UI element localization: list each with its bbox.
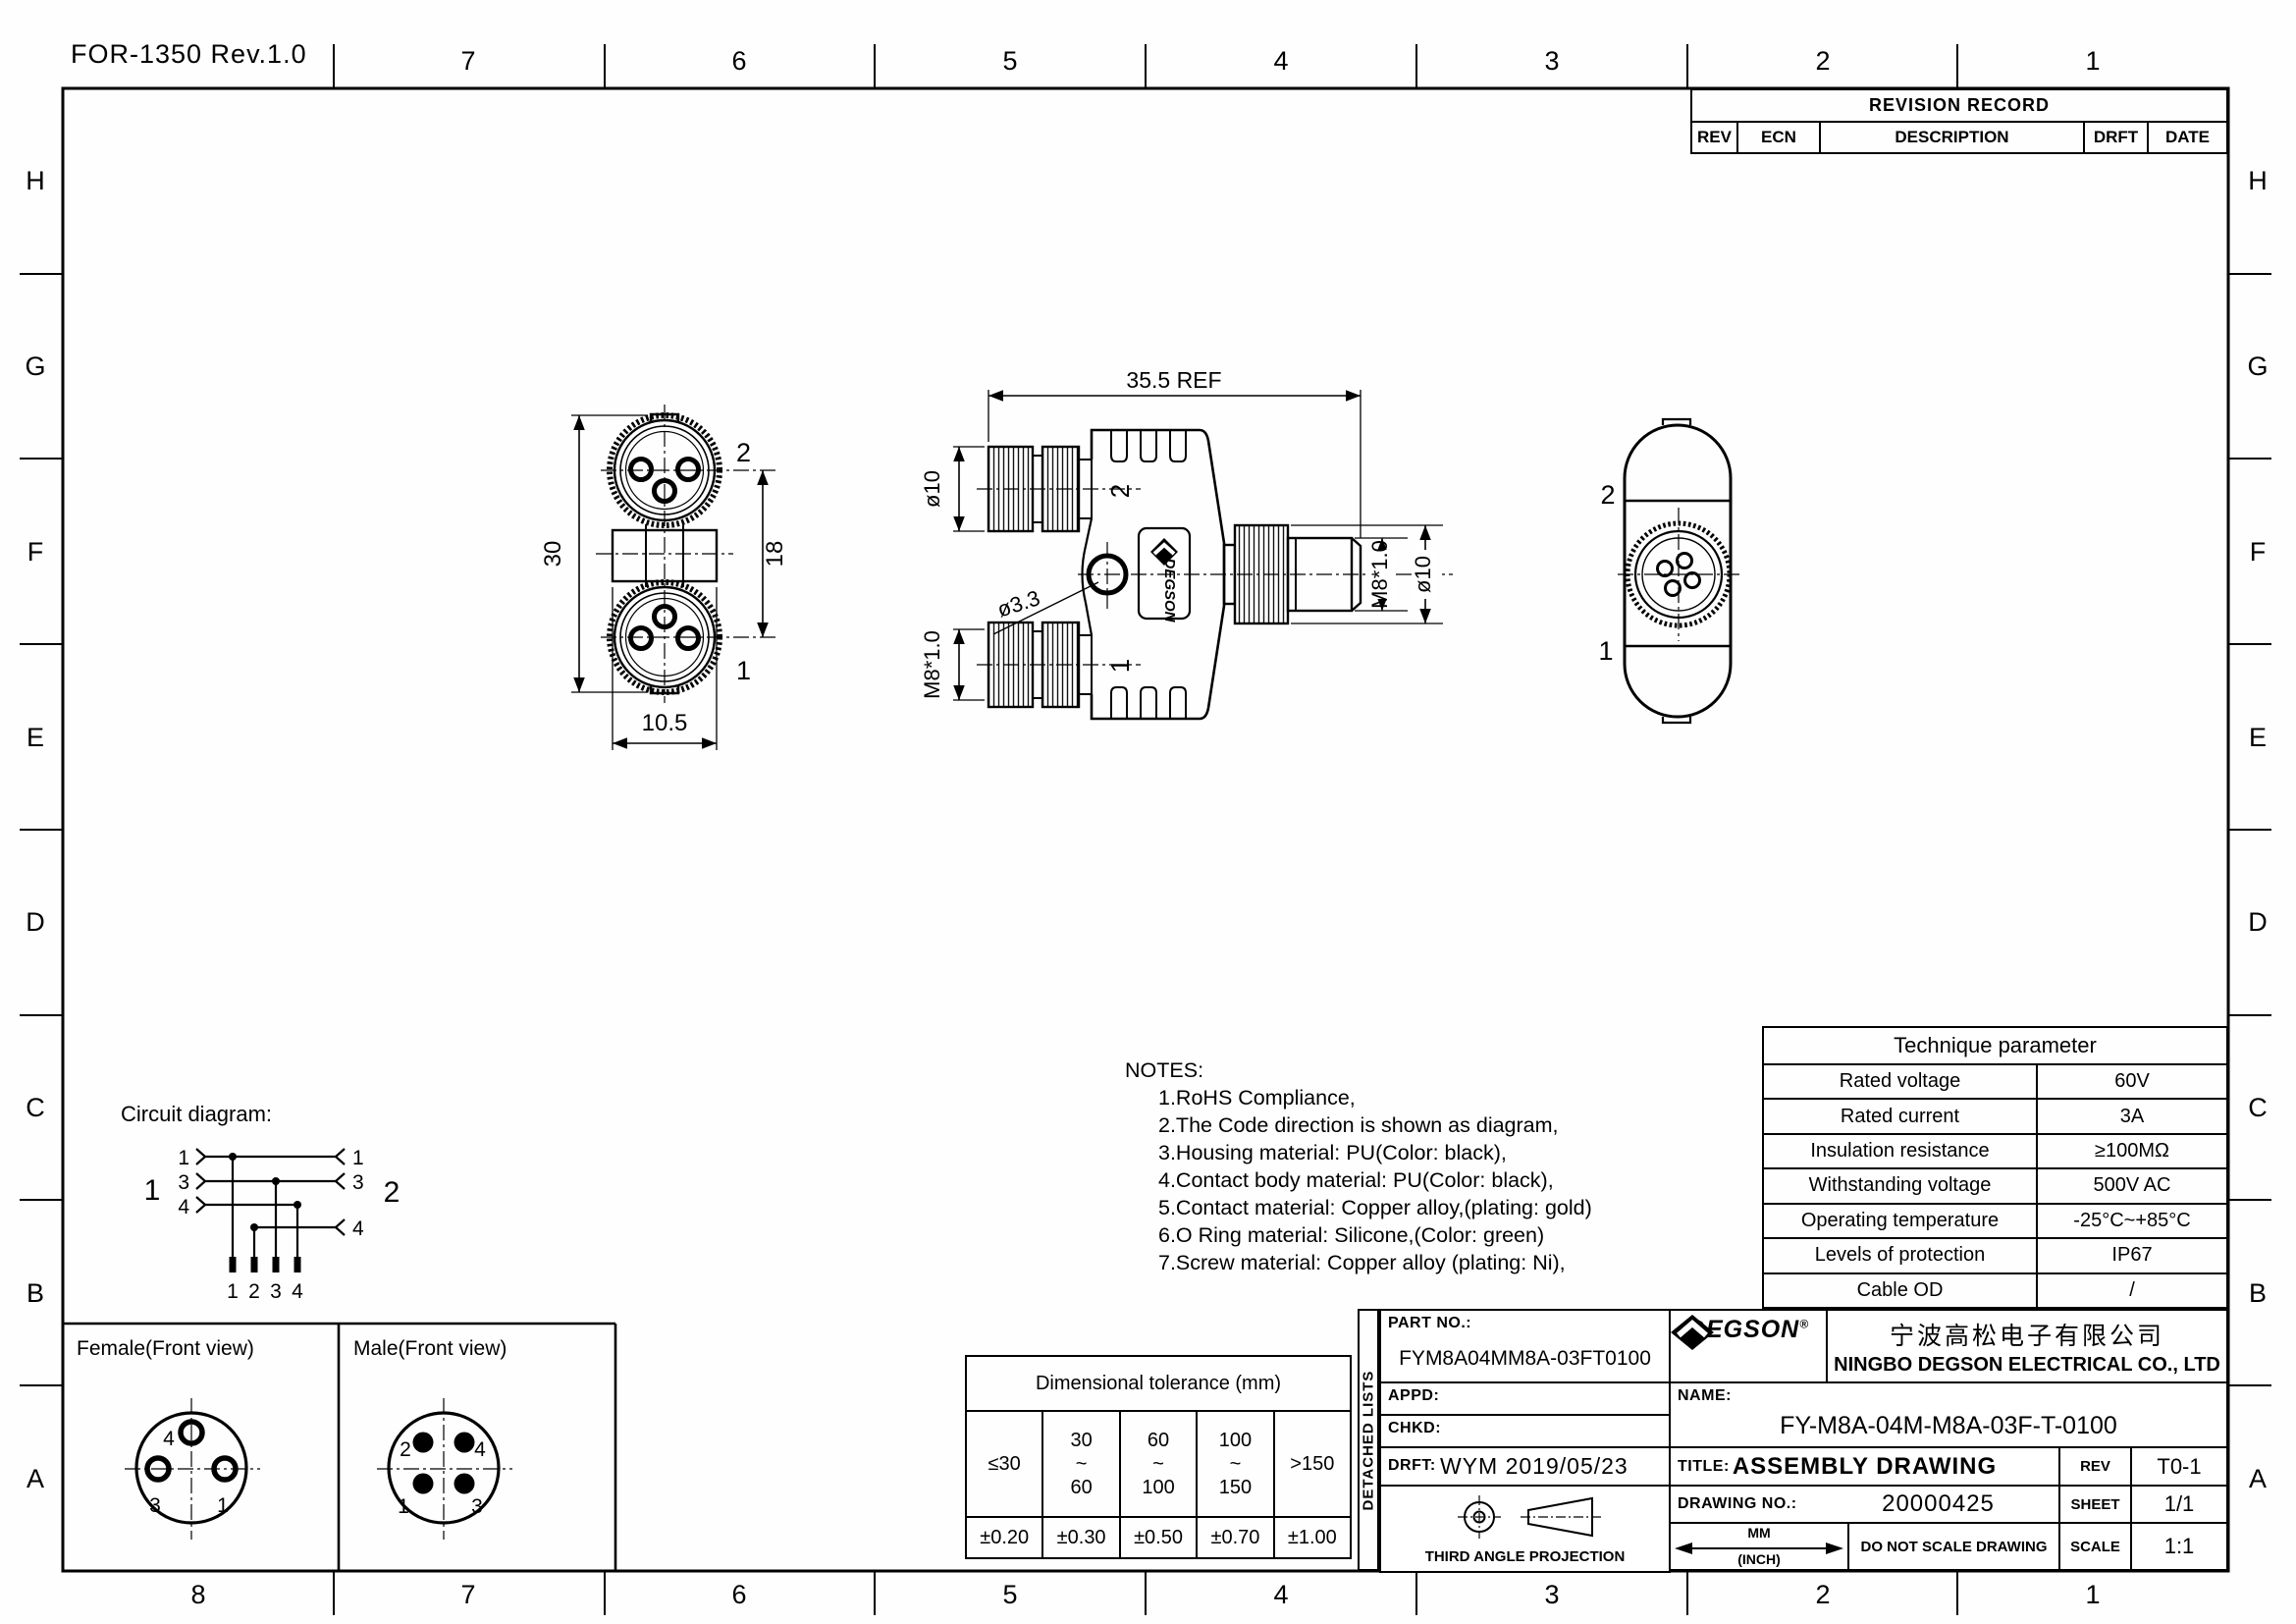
technique-label: Rated current — [1764, 1100, 2038, 1132]
chkd-label: CHKD: — [1388, 1420, 1441, 1437]
tolerance-range: >150 — [1275, 1412, 1350, 1518]
front-dim-pitch: 18 — [762, 541, 788, 568]
technique-title: Technique parameter — [1764, 1028, 2226, 1065]
title-value: ASSEMBLY DRAWING — [1671, 1448, 2058, 1485]
grid-col-label: 8 — [177, 1577, 220, 1612]
grid-col-label: 2 — [1801, 43, 1844, 79]
male-pin-2: 2 — [400, 1438, 411, 1461]
tolerance-range: ≤30 — [967, 1412, 1043, 1518]
tolerance-value: ±1.00 — [1275, 1518, 1350, 1557]
chkd-cell: CHKD: — [1379, 1414, 1671, 1448]
company-cell: 宁波高松电子有限公司 NINGBO DEGSON ELECTRICAL CO.,… — [1826, 1309, 2228, 1383]
units-inch: (INCH) — [1671, 1551, 1847, 1567]
title-cell: TITLE: ASSEMBLY DRAWING — [1669, 1446, 2060, 1487]
grid-row-label: G — [14, 349, 57, 384]
logo-cell: DEGSON® — [1669, 1309, 1828, 1383]
grid-row-label: D — [14, 904, 57, 940]
drawing-no-cell: DRAWING NO.: 20000425 — [1669, 1485, 2060, 1524]
side-port-1-label: 1 — [1105, 659, 1135, 673]
male-view-title: Male(Front view) — [353, 1337, 507, 1360]
sheet-label-cell: SHEET — [2058, 1485, 2132, 1524]
revision-record-table: REVISION RECORD REV ECN DESCRIPTION DRFT… — [1690, 88, 2228, 154]
tolerance-title: Dimensional tolerance (mm) — [967, 1357, 1350, 1412]
part-no-cell: PART NO.: FYM8A04MM8A-03FT0100 — [1379, 1309, 1671, 1383]
projection-cell: THIRD ANGLE PROJECTION — [1379, 1485, 1671, 1573]
grid-row-label: F — [2236, 534, 2279, 569]
rev-label-cell: REV — [2058, 1446, 2132, 1487]
grid-col-label: 6 — [718, 43, 761, 79]
grid-row-label: C — [2236, 1090, 2279, 1125]
technique-value: -25°C~+85°C — [2038, 1205, 2226, 1237]
female-view-title: Female(Front view) — [77, 1337, 254, 1360]
circuit-diagram — [196, 1149, 345, 1272]
technique-value: / — [2038, 1274, 2226, 1307]
notes-block: NOTES: 1.RoHS Compliance, 2.The Code dir… — [1125, 1056, 1714, 1276]
male-pin-4: 4 — [474, 1438, 486, 1461]
side-port-2-label: 2 — [1105, 484, 1135, 498]
third-angle-projection-symbol — [1381, 1489, 1669, 1545]
grid-row-label: D — [2236, 904, 2279, 940]
front-dim-width: 10.5 — [642, 710, 688, 736]
scale-value: 1:1 — [2132, 1524, 2226, 1569]
technique-label: Rated voltage — [1764, 1065, 2038, 1098]
scale-label-cell: SCALE — [2058, 1522, 2132, 1571]
tolerance-value: ±0.50 — [1121, 1518, 1198, 1557]
drft-value: WYM 2019/05/23 — [1440, 1448, 1669, 1485]
company-name-en: NINGBO DEGSON ELECTRICAL CO., LTD — [1828, 1354, 2226, 1377]
grid-row-label: G — [2236, 349, 2279, 384]
technique-value: 3A — [2038, 1100, 2226, 1132]
revision-col-ecn: ECN — [1738, 123, 1821, 152]
front-port-1-label: 1 — [736, 656, 751, 685]
back-port-2-label: 2 — [1600, 480, 1615, 510]
grid-col-label: 7 — [447, 1577, 490, 1612]
rev-label: REV — [2060, 1448, 2130, 1485]
part-no-value: FYM8A04MM8A-03FT0100 — [1381, 1336, 1669, 1381]
drawing-no-value: 20000425 — [1818, 1487, 2058, 1522]
detached-lists-strip: DETACHED LISTS — [1358, 1309, 1379, 1571]
rev-value: T0-1 — [2132, 1448, 2226, 1485]
revision-col-description: DESCRIPTION — [1821, 123, 2085, 152]
grid-col-label: 7 — [447, 43, 490, 79]
drft-cell: DRFT: WYM 2019/05/23 — [1379, 1446, 1671, 1487]
side-logo-text: DEGSON — [1161, 558, 1178, 623]
circuit-bottom-pin: 4 — [292, 1280, 303, 1303]
front-port-2-label: 2 — [736, 438, 751, 467]
technique-value: ≥100MΩ — [2038, 1135, 2226, 1167]
circuit-right-pin: 3 — [352, 1171, 364, 1194]
technique-label: Operating temperature — [1764, 1205, 2038, 1237]
part-no-label: PART NO.: — [1388, 1315, 1471, 1332]
side-dim-thread-right: M8*1.0 — [1367, 540, 1392, 609]
circuit-left-connector-label: 1 — [144, 1174, 161, 1207]
registered-mark: ® — [1799, 1318, 1809, 1331]
name-label: NAME: — [1678, 1387, 1732, 1405]
technique-value: 500V AC — [2038, 1169, 2226, 1202]
grid-row-label: E — [2236, 720, 2279, 755]
tolerance-range: 100 ~ 150 — [1198, 1412, 1274, 1518]
female-pin-3: 3 — [149, 1494, 161, 1517]
grid-row-label: A — [14, 1461, 57, 1496]
grid-col-label: 2 — [1801, 1577, 1844, 1612]
tolerance-range: 60 ~ 100 — [1121, 1412, 1198, 1518]
back-port-1-label: 1 — [1598, 636, 1613, 666]
note-item: 6.O Ring material: Silicone,(Color: gree… — [1158, 1221, 1714, 1249]
grid-col-label: 1 — [2071, 43, 2114, 79]
front-dim-height: 30 — [540, 541, 566, 568]
grid-row-label: B — [2236, 1275, 2279, 1311]
note-item: 3.Housing material: PU(Color: black), — [1158, 1139, 1714, 1166]
do-not-scale-label: DO NOT SCALE DRAWING — [1849, 1524, 2058, 1569]
rev-value-cell: T0-1 — [2130, 1446, 2228, 1487]
male-pin-3: 3 — [471, 1495, 483, 1518]
form-reference: FOR-1350 Rev.1.0 — [71, 39, 307, 70]
sheet-value: 1/1 — [2132, 1487, 2226, 1522]
circuit-right-connector-label: 2 — [384, 1176, 400, 1209]
sheet-value-cell: 1/1 — [2130, 1485, 2228, 1524]
do-not-scale-cell: DO NOT SCALE DRAWING — [1847, 1522, 2060, 1571]
note-item: 1.RoHS Compliance, — [1158, 1084, 1714, 1111]
grid-col-label: 6 — [718, 1577, 761, 1612]
scale-label: SCALE — [2060, 1524, 2130, 1569]
units-cell: MM (INCH) — [1669, 1522, 1849, 1571]
circuit-bottom-pin: 1 — [227, 1280, 239, 1303]
revision-col-date: DATE — [2149, 123, 2226, 152]
back-view — [1618, 419, 1739, 723]
name-cell: NAME: FY-M8A-04M-M8A-03F-T-0100 — [1669, 1381, 2228, 1448]
revision-record-title: REVISION RECORD — [1692, 90, 2226, 123]
grid-row-label: H — [14, 163, 57, 198]
female-pin-1: 1 — [217, 1494, 229, 1517]
grid-col-label: 3 — [1530, 1577, 1574, 1612]
tolerance-range: 30 ~ 60 — [1043, 1412, 1120, 1518]
appd-cell: APPD: — [1379, 1381, 1671, 1416]
name-value: FY-M8A-04M-M8A-03F-T-0100 — [1671, 1405, 2226, 1446]
technique-parameter-table: Technique parameter Rated voltage60V Rat… — [1762, 1026, 2228, 1309]
grid-row-label: B — [14, 1275, 57, 1311]
technique-value: IP67 — [2038, 1239, 2226, 1272]
sheet-label: SHEET — [2060, 1487, 2130, 1522]
appd-label: APPD: — [1388, 1387, 1439, 1405]
circuit-left-pin: 3 — [178, 1171, 189, 1194]
tolerance-value: ±0.30 — [1043, 1518, 1120, 1557]
tolerance-value: ±0.70 — [1198, 1518, 1274, 1557]
technique-label: Withstanding voltage — [1764, 1169, 2038, 1202]
female-pin-4: 4 — [163, 1428, 175, 1450]
technique-label: Cable OD — [1764, 1274, 2038, 1307]
circuit-right-pin: 4 — [352, 1218, 364, 1240]
circuit-bottom-pin: 3 — [270, 1280, 282, 1303]
side-dim-dia-right: ø10 — [1411, 556, 1435, 593]
grid-row-label: F — [14, 534, 57, 569]
degson-logo-icon — [1671, 1315, 1714, 1350]
circuit-title: Circuit diagram: — [121, 1102, 272, 1126]
side-dim-length: 35.5 REF — [1126, 367, 1221, 393]
grid-col-label: 4 — [1259, 43, 1303, 79]
tolerance-table: Dimensional tolerance (mm) ≤30 30 ~ 60 6… — [965, 1355, 1352, 1559]
side-dim-hole: ø3.3 — [994, 585, 1043, 622]
scale-value-cell: 1:1 — [2130, 1522, 2228, 1571]
grid-row-label: E — [14, 720, 57, 755]
note-item: 4.Contact body material: PU(Color: black… — [1158, 1166, 1714, 1194]
notes-title: NOTES: — [1125, 1056, 1714, 1084]
note-item: 7.Screw material: Copper alloy (plating:… — [1158, 1249, 1714, 1276]
tolerance-value: ±0.20 — [967, 1518, 1043, 1557]
grid-col-label: 4 — [1259, 1577, 1303, 1612]
grid-col-label: 5 — [988, 43, 1032, 79]
technique-label: Levels of protection — [1764, 1239, 2038, 1272]
grid-col-label: 3 — [1530, 43, 1574, 79]
grid-col-label: 5 — [988, 1577, 1032, 1612]
circuit-right-pin: 1 — [352, 1147, 364, 1169]
pin-view-boxes — [63, 1324, 615, 1571]
grid-row-label: H — [2236, 163, 2279, 198]
note-item: 2.The Code direction is shown as diagram… — [1158, 1111, 1714, 1139]
drft-label: DRFT: — [1388, 1457, 1436, 1475]
grid-row-label: C — [14, 1090, 57, 1125]
side-dim-dia-left: ø10 — [920, 470, 944, 508]
grid-col-label: 1 — [2071, 1577, 2114, 1612]
circuit-left-pin: 1 — [178, 1147, 189, 1169]
drawing-no-label: DRAWING NO.: — [1678, 1495, 1797, 1513]
circuit-bottom-pin: 2 — [248, 1280, 260, 1303]
detached-lists-label: DETACHED LISTS — [1361, 1370, 1377, 1510]
circuit-left-pin: 4 — [178, 1196, 189, 1218]
drawing-sheet: 30 18 10.5 2 1 — [0, 0, 2296, 1624]
grid-row-label: A — [2236, 1461, 2279, 1496]
male-pin-1: 1 — [398, 1495, 409, 1518]
company-name-cn: 宁波高松电子有限公司 — [1828, 1317, 2226, 1352]
projection-label: THIRD ANGLE PROJECTION — [1381, 1548, 1669, 1565]
technique-value: 60V — [2038, 1065, 2226, 1098]
revision-col-rev: REV — [1692, 123, 1738, 152]
revision-col-drft: DRFT — [2085, 123, 2149, 152]
note-item: 5.Contact material: Copper alloy,(platin… — [1158, 1194, 1714, 1221]
technique-label: Insulation resistance — [1764, 1135, 2038, 1167]
side-dim-thread-left: M8*1.0 — [920, 630, 944, 699]
